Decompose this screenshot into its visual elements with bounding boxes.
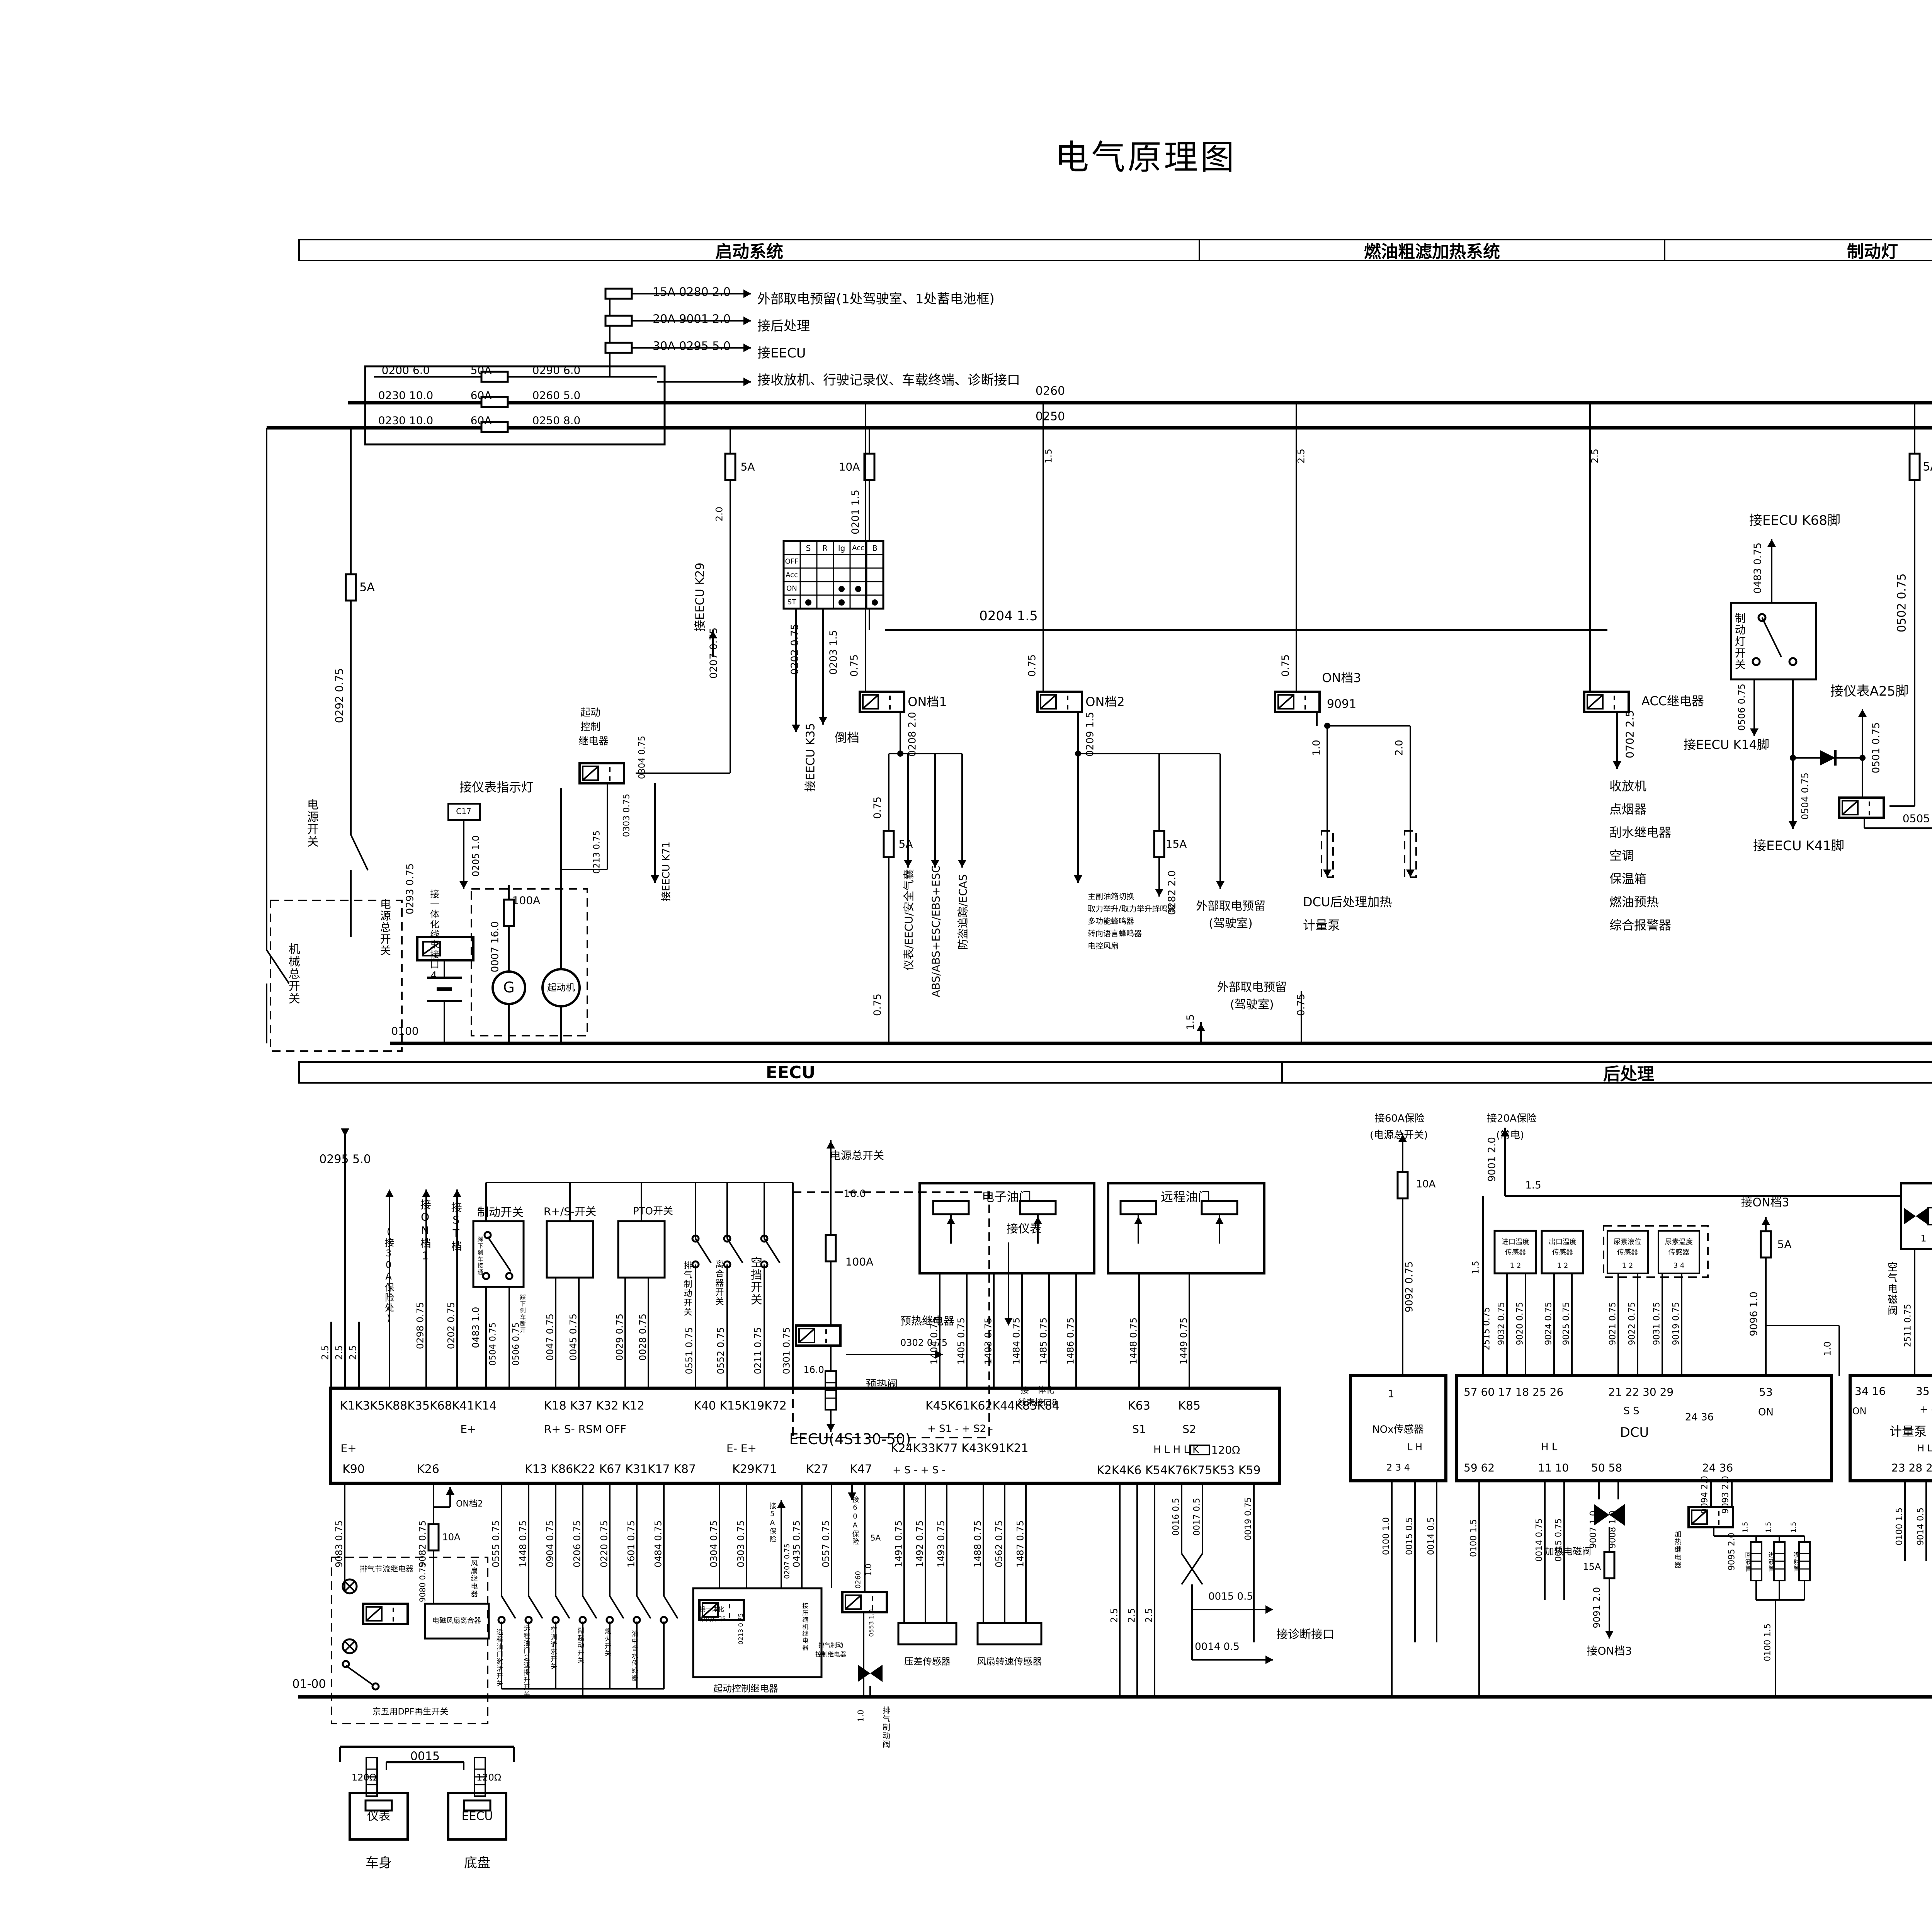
diagram-label: 接EECU K68脚 — [1749, 514, 1840, 528]
diagram-label: 传感器 — [1505, 1249, 1526, 1257]
diagram-label: ABS/ABS+ESC/EBS+ESC — [930, 865, 941, 997]
diagram-label: 预热继电器 — [900, 1315, 954, 1326]
diagram-label: 2515 0.75 — [1482, 1307, 1491, 1350]
diagram-label: 1491 0.75 — [894, 1520, 903, 1567]
diagram-label: H L — [1541, 1442, 1557, 1452]
diagram-label: 0505 0.75 — [1903, 813, 1932, 824]
diagram-label: 排气节流继电器 — [359, 1565, 413, 1573]
diagram-label: (接30A保险处) — [383, 1226, 393, 1324]
diagram-label: 制动灯开关 — [1734, 613, 1745, 670]
diagram-label: 1.5 — [1791, 1522, 1798, 1533]
diagram-label: K47 — [850, 1463, 872, 1475]
diagram-label: 0208 2.0 — [907, 712, 918, 757]
diagram-label: 0203 1.5 — [828, 630, 839, 675]
diagram-label: K85 — [1178, 1400, 1201, 1412]
diagram-label: 53 — [1759, 1386, 1773, 1397]
diagram-label: 1.0 — [1311, 740, 1322, 756]
diagram-label: 100A — [845, 1256, 874, 1267]
diagram-label: 线束接口5 — [697, 1616, 726, 1623]
diagram-label: 0.75 — [1281, 654, 1291, 677]
diagram-label: 0014 0.5 — [1427, 1517, 1435, 1555]
schematic-page: 电气原理图 7-1 启动系统燃油粗滤加热系统制动灯EECU后处理诊断接口 15A… — [0, 0, 1932, 1916]
diagram-label: 接ST档 — [450, 1202, 461, 1252]
diagram-label: 1.0 — [1823, 1341, 1832, 1356]
diagram-label: 0260 — [855, 1571, 862, 1589]
diagram-label: 9092 0.75 — [1404, 1261, 1415, 1312]
section-band: 启动系统燃油粗滤加热系统制动灯 — [298, 239, 1932, 261]
diagram-label: 电源开关 — [305, 798, 318, 848]
diagram-label: 接收放机、行驶记录仪、车载终端、诊断接口 — [757, 374, 1020, 388]
diagram-label: 传感器 — [1552, 1249, 1573, 1257]
diagram-label: 1492 0.75 — [915, 1520, 925, 1567]
diagram-label: ON档2 — [456, 1499, 483, 1508]
diagram-label: 0290 6.0 — [532, 364, 581, 376]
diagram-label: 0304 0.75 — [638, 736, 646, 779]
diagram-label: 0029 0.75 — [615, 1314, 624, 1361]
diagram-label: S — [806, 545, 811, 553]
diagram-label: 9019 0.75 — [1672, 1302, 1680, 1345]
diagram-label: 接EECU — [757, 347, 806, 361]
diagram-label: 0100 — [391, 1025, 418, 1036]
diagram-label: 0504 0.75 — [1800, 773, 1810, 820]
diagram-label: 57 60 17 18 25 26 — [1464, 1386, 1563, 1397]
diagram-label: Acc — [786, 572, 798, 579]
diagram-label: ST — [787, 599, 796, 606]
diagram-label: 0200 6.0 — [382, 364, 430, 376]
diagram-label: 2.5 — [320, 1345, 330, 1360]
diagram-label: 11 10 — [1538, 1462, 1569, 1473]
diagram-label: 倒档 — [835, 732, 859, 745]
diagram-label: 0298 0.75 — [415, 1302, 425, 1349]
diagram-label: ON — [1852, 1406, 1867, 1416]
diagram-label: 主副油箱切换 — [1088, 893, 1134, 901]
diagram-label: 接ON档3 — [1587, 1645, 1632, 1656]
diagram-label: 120Ω — [352, 1773, 376, 1782]
diagram-label: 15A 0280 2.0 — [653, 286, 731, 298]
diagram-label: ON档2 — [1085, 696, 1125, 709]
diagram-label: 0295 5.0 — [319, 1153, 371, 1166]
diagram-label: 接仪表指示灯 — [459, 781, 534, 794]
diagram-label: 1448 0.75 — [518, 1520, 528, 1567]
diagram-label: 0202 0.75 — [790, 624, 800, 675]
diagram-label: S1 — [1132, 1423, 1146, 1434]
diagram-label: (电源总开关) — [1370, 1130, 1428, 1140]
diagram-label: K90 — [342, 1463, 365, 1475]
diagram-label: B — [872, 545, 878, 553]
diagram-label: 9083 0.75 — [334, 1520, 344, 1567]
diagram-label: 1448 0.75 — [1129, 1317, 1138, 1365]
diagram-label: 1 2 — [1557, 1263, 1568, 1270]
diagram-label: 5A — [1777, 1239, 1792, 1250]
diagram-label: 空调 — [1609, 849, 1634, 863]
diagram-label: 接一体化线束接口4 — [429, 889, 438, 981]
diagram-label: 10A — [442, 1532, 461, 1542]
diagram-label: 0260 — [1036, 385, 1065, 397]
diagram-label: 9020 0.75 — [1515, 1302, 1524, 1345]
diagram-label: 1.5 — [1765, 1522, 1773, 1533]
diagram-label: 接仪表A25脚 — [1830, 685, 1909, 699]
diagram-label: 0303 0.75 — [736, 1520, 746, 1567]
diagram-label: 15A — [1166, 838, 1187, 849]
diagram-label: 1487 0.75 — [1015, 1520, 1025, 1567]
diagram-label: 保温箱 — [1609, 873, 1646, 886]
diagram-label: 排气制动 — [818, 1642, 843, 1649]
diagram-label: 60A — [471, 390, 492, 401]
diagram-label: 0014 0.5 — [1195, 1642, 1240, 1652]
diagram-label: E+ — [340, 1443, 356, 1454]
diagram-label: 2.5 — [1127, 1608, 1136, 1623]
diagram-label: R+ S- RSM OFF — [544, 1423, 626, 1434]
diagram-label: 20A 9001 2.0 — [653, 313, 731, 325]
diagram-label: 0293 0.75 — [405, 863, 415, 914]
section-band: EECU后处理诊断接口 — [298, 1061, 1932, 1084]
diagram-label: 1.5 — [1471, 1261, 1480, 1274]
diagram-label: 01-00 — [292, 1678, 326, 1690]
diagram-label: 传感器 — [1668, 1249, 1689, 1257]
diagram-label: 取力举升/取力举升蜂鸣器 — [1088, 905, 1175, 913]
diagram-label: DCU — [1620, 1426, 1649, 1440]
diagram-label: 车身 — [366, 1856, 392, 1870]
diagram-label: 0.75 — [849, 654, 860, 677]
diagram-label: K13 K86K22 K67 K31K17 K87 — [525, 1463, 696, 1475]
diagram-label: NOx传感器 — [1372, 1424, 1423, 1435]
diagram-label: 电源总开关 — [379, 898, 390, 956]
diagram-label: 0230 10.0 — [378, 415, 434, 426]
diagram-label: (驾驶室) — [1230, 999, 1274, 1011]
diagram-label: 100A — [512, 895, 541, 906]
diagram-label: 120Ω — [1211, 1444, 1240, 1455]
diagram-label: 防盗追踪/ECAS — [957, 874, 968, 950]
diagram-label: 外部取电预留 — [1217, 981, 1287, 994]
diagram-label: 0100 1.0 — [1382, 1517, 1391, 1555]
diagram-label: DCU后处理加热 — [1303, 896, 1392, 909]
diagram-label: 电磁风扇离合器 — [432, 1618, 481, 1625]
diagram-label: 排气制动开关 — [682, 1261, 691, 1317]
diagram-label: 接EECU K14脚 — [1684, 738, 1769, 752]
diagram-label: 1485 0.75 — [1039, 1317, 1048, 1365]
diagram-label: 0015 0.5 — [1405, 1517, 1414, 1555]
diagram-label: 35 36 — [1916, 1385, 1932, 1397]
diagram-label: (驾驶室) — [1209, 917, 1252, 930]
diagram-label: (常电) — [1496, 1130, 1524, 1140]
diagram-label: K63 — [1128, 1400, 1150, 1412]
diagram-label: 9025 0.75 — [1562, 1302, 1571, 1345]
diagram-label: K45K61K62K44K83K84 — [925, 1400, 1060, 1412]
diagram-label: 9082 0.75 — [418, 1520, 427, 1567]
diagram-label: 24 36 — [1702, 1462, 1733, 1473]
diagram-label: S2 — [1182, 1423, 1196, 1434]
diagram-label: 0201 1.5 — [850, 490, 861, 534]
diagram-label: 0904 0.75 — [545, 1520, 555, 1567]
diagram-label: + - — [1920, 1404, 1932, 1415]
diagram-label: 油中含水传感器 — [630, 1630, 637, 1682]
diagram-label: 外部取电预留(1处驾驶室、1处蓄电池框) — [757, 293, 995, 306]
diagram-label: Ig — [838, 545, 845, 553]
diagram-label: 9093 2.0 — [1721, 1476, 1730, 1514]
diagram-label: 0047 0.75 — [545, 1314, 555, 1361]
diagram-label: 转向语言蜂鸣器 — [1088, 930, 1142, 938]
diagram-label: 0.75 — [1027, 654, 1037, 677]
diagram-label: 1 — [1920, 1234, 1926, 1243]
diagram-label: 空气电磁阀 — [1886, 1262, 1896, 1316]
diagram-label: 0220 0.75 — [599, 1520, 609, 1567]
diagram-label: 10A — [839, 461, 860, 472]
diagram-label: 0230 10.0 — [378, 390, 434, 401]
diagram-label: 制动开关 — [477, 1206, 524, 1219]
diagram-label: 1488 0.75 — [973, 1520, 983, 1567]
diagram-label: 1403 0.75 — [983, 1317, 993, 1365]
diagram-label: 1486 0.75 — [1066, 1317, 1075, 1365]
diagram-label: H L H L K — [1153, 1445, 1199, 1455]
diagram-label: 收放机 — [1609, 780, 1646, 793]
diagram-label: 16.0 — [803, 1365, 824, 1375]
diagram-label: 0250 8.0 — [532, 415, 581, 426]
diagram-label: 0506 0.75 — [1737, 684, 1747, 731]
diagram-label: 5A — [359, 581, 375, 594]
diagram-label: 传感器 — [1617, 1249, 1638, 1257]
diagram-label: 远程油门 — [1161, 1191, 1210, 1204]
diagram-label: 0555 0.75 — [491, 1520, 501, 1567]
diagram-label: 2.5 — [1109, 1608, 1119, 1623]
diagram-label: 24 36 — [1685, 1412, 1714, 1423]
diagram-label: R+/S-开关 — [544, 1206, 596, 1217]
diagram-label: 2.5 — [1296, 449, 1306, 463]
section-header: 启动系统 — [300, 240, 1200, 260]
diagram-label: 0501 0.75 — [1871, 722, 1881, 773]
diagram-label: ON — [786, 585, 797, 593]
diagram-label: 1405 0.75 — [956, 1317, 966, 1365]
diagram-label: 远程油门激活开关 — [495, 1628, 502, 1687]
diagram-label: 0007 16.0 — [490, 921, 500, 972]
diagram-label: 起动机 — [547, 983, 575, 992]
diagram-label: 0483 0.75 — [1753, 543, 1763, 594]
diagram-label: 接20A保险 — [1487, 1113, 1537, 1124]
diagram-label: 接仪表 — [1007, 1223, 1041, 1235]
diagram-label: 2.5 — [1144, 1608, 1154, 1623]
diagram-label: S S — [1623, 1406, 1639, 1416]
diagram-label: 1 2 — [1510, 1263, 1521, 1270]
diagram-label: 0014 0.75 — [1535, 1518, 1544, 1562]
diagram-label: 15A — [1583, 1562, 1601, 1572]
diagram-label: 0213 0.75 — [592, 830, 601, 874]
diagram-label: 接60A保险 — [851, 1496, 859, 1546]
diagram-label: K2K4K6 K54K76K75K53 K59 — [1097, 1464, 1261, 1477]
diagram-label: 接5A保险 — [769, 1502, 776, 1543]
diagram-label: 5A — [1923, 461, 1932, 473]
diagram-label: 0045 0.75 — [568, 1314, 578, 1361]
diagram-label: 接一体化 — [699, 1606, 724, 1613]
diagram-label: 接ON档1 — [419, 1199, 430, 1263]
diagram-label: C17 — [456, 808, 471, 816]
diagram-label: 0019 0.75 — [1244, 1497, 1253, 1540]
diagram-label: 刮水继电器 — [1609, 826, 1671, 839]
diagram-label: 5A — [899, 838, 913, 849]
diagram-label: 风扇转速传感器 — [977, 1657, 1042, 1666]
diagram-label: 综合报警器 — [1609, 919, 1671, 932]
diagram-label: 9022 0.75 — [1628, 1302, 1636, 1345]
diagram-label: 进液管 — [1767, 1552, 1774, 1572]
diagram-label: 0028 0.75 — [638, 1314, 648, 1361]
diagram-label: 0015 — [410, 1750, 440, 1763]
diagram-label: PTO开关 — [633, 1206, 673, 1217]
diagram-label: H L — [1917, 1443, 1932, 1453]
diagram-label: 0.75 — [1296, 994, 1306, 1016]
diagram-label: 9080 0.75 — [419, 1563, 427, 1602]
diagram-label: 0502 0.75 — [1896, 573, 1908, 633]
diagram-label: 接EECU K35 — [804, 723, 817, 792]
diagram-label: 继电器 — [578, 736, 609, 747]
diagram-label: 0553 1.0 — [869, 1609, 875, 1637]
diagram-label: 1 — [1388, 1389, 1395, 1399]
diagram-label: 9007 1.0 — [1589, 1511, 1598, 1548]
diagram-label: ON档1 — [908, 696, 947, 709]
diagram-label: 起动 — [580, 708, 600, 718]
diagram-label: 0207 0.75 — [784, 1543, 791, 1579]
diagram-label: K18 K37 K32 K12 — [544, 1400, 645, 1412]
diagram-label: 30A 0295 5.0 — [653, 340, 731, 352]
diagram-label: 9008 1.0 — [1608, 1511, 1617, 1548]
diagram-label: 0551 0.75 — [684, 1327, 694, 1374]
diagram-label: 5A — [741, 461, 755, 472]
diagram-label: 9032 0.75 — [1497, 1302, 1506, 1345]
diagram-label: 0206 0.75 — [572, 1520, 582, 1567]
diagram-label: 风扇继电器 — [470, 1559, 477, 1598]
diagram-label: 京五用DPF再生开关 — [372, 1707, 449, 1716]
diagram-label: 起动控制继电器 — [713, 1684, 778, 1693]
diagram-label: 0100 1.5 — [1469, 1519, 1478, 1557]
diagram-label: 1 2 — [1622, 1263, 1633, 1270]
diagram-label: 点烟器 — [1609, 803, 1646, 816]
diagram-label: 远程油门怠速提升开关 — [522, 1625, 529, 1698]
diagram-label: 0100 1.5 — [1763, 1623, 1772, 1661]
diagram-label: 0205 1.0 — [471, 835, 481, 877]
diagram-label: 9014 0.5 — [1916, 1508, 1925, 1545]
diagram-label: 0202 0.75 — [446, 1302, 456, 1349]
diagram-label: 50 58 — [1591, 1462, 1622, 1473]
diagram-label: 控制继电器 — [815, 1652, 846, 1658]
diagram-label: 1.5 — [1044, 449, 1053, 463]
diagram-label: 电源总开关 — [830, 1150, 884, 1161]
diagram-label: 2.0 — [1394, 740, 1405, 756]
diagram-label: 9096 1.0 — [1749, 1292, 1759, 1336]
diagram-label: 空挡开关 — [749, 1256, 761, 1306]
diagram-label: 0250 — [1036, 410, 1065, 423]
diagram-label: K26 — [417, 1463, 439, 1475]
diagram-label: 接60A保险 — [1375, 1113, 1425, 1124]
diagram-label: 23 28 22 — [1891, 1462, 1932, 1473]
diagram-label: 1493 0.75 — [936, 1520, 946, 1567]
section-header: 制动灯 — [1665, 240, 1932, 260]
diagram-label: 0435 0.75 — [792, 1520, 801, 1567]
diagram-label: 外部取电预留 — [1196, 900, 1265, 912]
diagram-label: 9095 2.0 — [1727, 1533, 1736, 1571]
diagram-label: 接一体化 — [1020, 1386, 1054, 1395]
diagram-label: 接EECU K41脚 — [1753, 839, 1844, 853]
diagram-label: 0207 0.75 — [709, 628, 719, 679]
diagram-label: 1.0 — [857, 1710, 865, 1722]
diagram-label: 0557 0.75 — [821, 1520, 831, 1567]
diagram-label: 计量泵 — [1303, 919, 1340, 932]
diagram-label: 2 3 4 — [1386, 1463, 1410, 1472]
section-header: EECU — [300, 1063, 1283, 1082]
diagram-label: 0015 0.5 — [1208, 1591, 1253, 1602]
diagram-label: 仪表 — [367, 1810, 390, 1822]
diagram-label: 0504 0.75 — [488, 1322, 497, 1366]
diagram-label: 0484 0.75 — [653, 1520, 663, 1567]
diagram-label: 9001 2.0 — [1487, 1137, 1497, 1182]
diagram-label: 1601 0.75 — [626, 1520, 636, 1567]
diagram-label: 21 22 30 29 — [1608, 1386, 1673, 1397]
diagram-label: 0552 0.75 — [716, 1327, 726, 1374]
diagram-label: 接后处理 — [757, 320, 810, 334]
diagram-label: 尿素液位 — [1614, 1239, 1641, 1246]
diagram-label: 熄火开关 — [603, 1628, 610, 1657]
diagram-label: 出口温度 — [1549, 1239, 1577, 1246]
diagram-label: 0.75 — [872, 796, 883, 819]
diagram-label: 0204 1.5 — [979, 609, 1037, 623]
diagram-label: 120Ω — [476, 1773, 501, 1782]
diagram-label: 10A — [1416, 1179, 1436, 1189]
diagram-label: 多功能蜂鸣器 — [1088, 917, 1134, 926]
diagram-label: 加热电磁阀 — [1545, 1547, 1591, 1556]
diagram-label: 电控风扇 — [1088, 942, 1119, 950]
diagram-label: 3 4 — [1673, 1263, 1685, 1270]
diagram-label: ON — [1758, 1407, 1774, 1417]
diagram-label: 0211 0.75 — [753, 1327, 763, 1374]
diagram-label: 1.0 — [865, 1564, 873, 1576]
diagram-label: 排气制动阀 — [882, 1706, 890, 1749]
diagram-label: 0.75 — [872, 994, 883, 1016]
diagram-label: K29K71 — [732, 1463, 777, 1475]
diagram-label: 加热继电器 — [1673, 1530, 1681, 1569]
diagram-label: 仪表/EECU/安全气囊 — [903, 869, 914, 970]
diagram-label: 0562 0.75 — [994, 1520, 1004, 1567]
diagram-label: 预热阀 — [866, 1378, 898, 1390]
diagram-label: OFF — [785, 558, 799, 566]
diagram-label: ON档3 — [1322, 672, 1361, 685]
diagram-label: 0260 5.0 — [532, 390, 581, 401]
diagram-label: 1484 0.75 — [1012, 1317, 1021, 1365]
diagram-label: 0016 0.5 — [1172, 1498, 1180, 1536]
diagram-label: 0303 0.75 — [622, 794, 631, 837]
diagram-label: 50A — [471, 364, 492, 376]
diagram-label: 1404 0.75 — [929, 1317, 939, 1365]
diagram-label: + S1 - + S2 - — [927, 1424, 993, 1434]
section-header: 燃油粗滤加热系统 — [1200, 240, 1665, 260]
diagram-label: 0017 0.5 — [1192, 1498, 1201, 1536]
diagram-label: 5A — [871, 1534, 881, 1542]
diagram-label: 2.5 — [348, 1345, 358, 1360]
diagram-label: 2511 0.75 — [1903, 1304, 1912, 1347]
diagram-label: 接压缩机继电器 — [801, 1603, 808, 1651]
diagram-label: 喷射管 — [1793, 1552, 1799, 1572]
diagram-label: Acc — [852, 545, 864, 552]
diagram-label: 进口温度 — [1502, 1239, 1529, 1246]
diagram-label: 计量泵 — [1889, 1425, 1927, 1438]
diagram-label: 1.5 — [1742, 1522, 1750, 1533]
diagram-label: 16.0 — [844, 1189, 866, 1199]
diagram-label: + S - + S - — [893, 1465, 946, 1475]
diagram-label: 空调请求开关 — [549, 1626, 556, 1670]
diagram-label: K27 — [806, 1463, 828, 1475]
section-header: 后处理 — [1283, 1063, 1932, 1082]
diagram-label: 回液管 — [1744, 1552, 1751, 1572]
diagram-label: EECU — [462, 1810, 493, 1822]
diagram-label: 0301 0.75 — [782, 1327, 791, 1374]
diagram-label: 1.5 — [1185, 1014, 1196, 1030]
diagram-label: ACC继电器 — [1641, 695, 1704, 708]
diagram-label: 0213 0.75 — [738, 1613, 745, 1644]
